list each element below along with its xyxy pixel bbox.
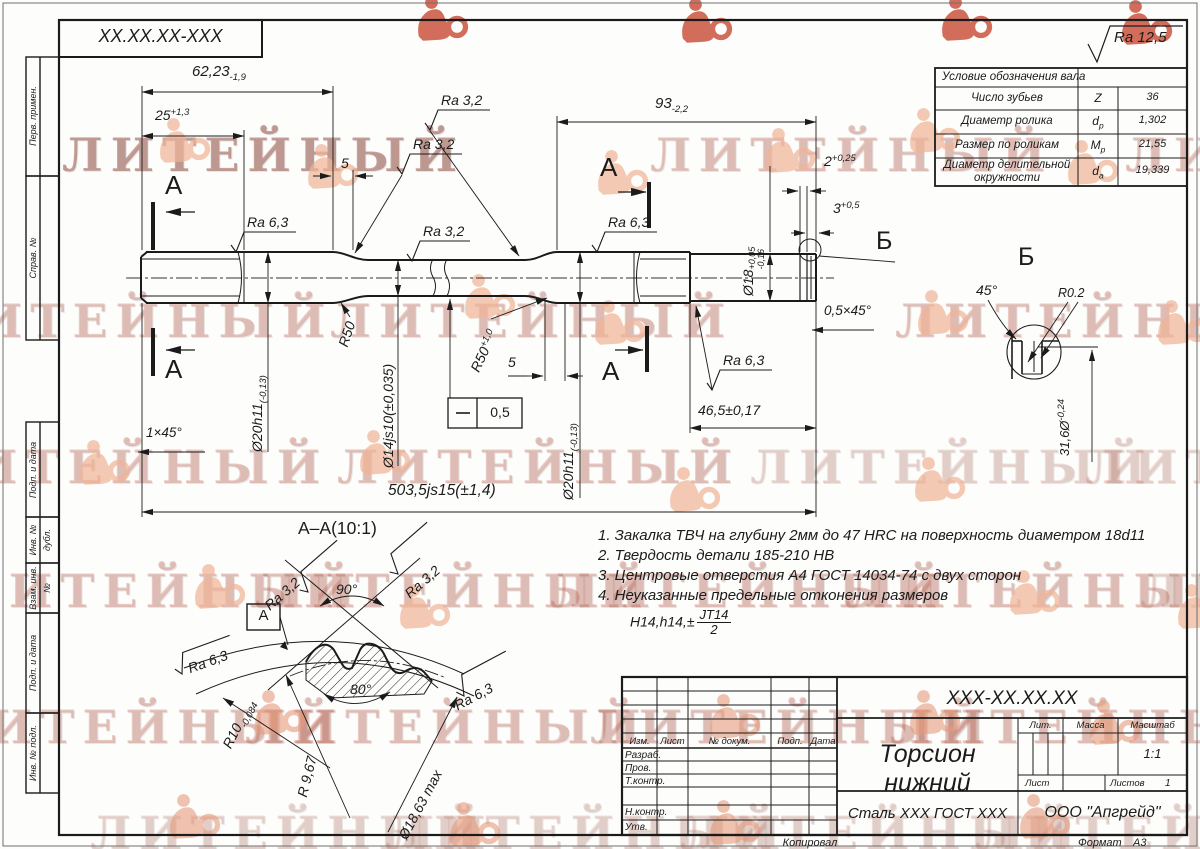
dim-label: 62,23-1,9 [192,64,246,80]
tb-header-list: Лист [657,736,688,747]
footer-format-value: А3 [1133,837,1146,849]
cut-label: А [165,172,182,199]
break-line [445,259,450,296]
dim-label: 5 [508,355,516,370]
material: Сталь XXX ГОСТ XXX [837,805,1018,822]
spline-table-title: Условие обозначения вала [942,71,1085,83]
watermark-text: ЛИТЕЙНЫЙ [62,128,465,182]
margin-stamp: Подп. и дата [26,615,40,711]
tb-header-izm: Изм. [622,736,657,747]
dim-label: 2+0,25 [824,154,856,169]
datum-label: А [247,608,280,624]
drawing-sheet: ЛИТЕЙНЫЙ ЛИТЕЙНЫЙ ЛИТЕЙНЫЙ ЛИТЕЙНЫЙ ЛИТЕ… [0,0,1200,849]
margin-stamp: Инв. № дубл. [26,518,40,562]
note-line: 1. Закалка ТВЧ на глубину 2мм до 47 HRC … [598,528,1145,544]
watermark-text: ЛИТЕЙНЫЙ [245,700,648,754]
dim-label-vertical: Ø20h11(-0,13) [250,327,265,452]
corner-designation: XX.XX.XX-XXX [59,27,262,46]
angle-label: 45° [976,283,997,298]
tb-header-sheet: Лист [1025,778,1049,789]
dim-label: 93-2,2 [655,96,688,112]
angle-label: 80° [350,682,371,697]
roughness-label: Ra 3,2 [441,93,482,108]
tb-row-label: Н.контр. [625,807,667,818]
table-param: Диаметр ролика [936,115,1078,127]
detail-callout-label: Б [876,228,892,254]
margin-stamp: Подп. и дата [26,425,40,515]
cut-label: А [165,356,182,383]
watermark-text: ЛИТЕЙНЫЙ [895,294,1200,348]
dim-label: 5 [341,156,349,171]
dim-label: R 9,67 [295,755,319,799]
dim-label: 1×45° [146,426,182,440]
scale-value: 1:1 [1118,746,1187,761]
roughness-label: Ra 3,2 [423,224,464,239]
table-symbol: dа [1078,165,1118,180]
tb-row-label: Т.контр. [625,776,665,787]
tb-header-mass: Масса [1063,720,1118,731]
table-value: 36 [1118,92,1187,104]
table-value: 1,302 [1118,115,1187,127]
note-line: 4. Неуказанные предельные отконения разм… [598,588,948,604]
watermark-text: ЛИТЕЙНЫЙ [0,294,333,348]
table-param: Размер по роликам [936,139,1078,151]
detail-title: Б [1018,244,1034,270]
note-line: 2. Твердость детали 185-210 НВ [598,548,834,564]
tb-header-lit: Лит. [1018,720,1063,731]
dim-label: 25+1,3 [155,108,189,123]
note-line: 3. Центровые отверстия А4 ГОСТ 14034-74 … [598,568,1021,584]
dim-label: 46,5±0,17 [698,403,760,418]
table-value: 21,55 [1118,139,1187,151]
tb-header-scale: Масштаб [1118,720,1187,731]
table-value: 19,339 [1118,165,1187,177]
tb-header-sign: Подп. [771,736,809,747]
margin-stamp: Инв. № подл. [26,715,40,791]
table-param: Число зубьев [936,92,1078,104]
table-symbol: dр [1078,115,1118,130]
dim-label-vertical: 31,6Ø-0,24 [1058,364,1072,456]
cut-label: А [600,154,617,181]
roughness-label: Ra 6,3 [608,215,649,230]
watermark-text: ЛИТЕЙНЫЙ [1140,564,1200,618]
footer-format-label: Формат [1078,837,1122,849]
dim-label-vertical: Ø18+0,05-0,16 [741,166,766,296]
tb-row-label: Утв. [625,822,648,833]
roughness-label: Ra 6,3 [247,215,288,230]
company: ООО "Апгрейд" [1018,804,1187,822]
watermark-text: ЛИТЕЙНЫЙ [0,440,328,494]
tb-header-sheets: Листов [1110,778,1145,789]
roughness-label: Ra 3,2 [413,137,454,152]
section-title: А–А(10:1) [298,519,377,537]
margin-stamp: Справ. № [26,179,40,337]
break-line [431,259,436,296]
dim-label: 3+0,5 [833,201,860,216]
tb-row-label: Пров. [625,763,651,774]
sheets-value: 1 [1165,778,1171,789]
tolerance-value: 0,5 [479,405,521,420]
dim-label: 503,5js15(±1,4) [388,483,496,499]
watermark-text: ЛИТЕЙНЫЙ [1085,440,1200,494]
radius-label: R0.2 [1058,287,1084,300]
part-name: Торсион нижний [837,740,1018,798]
angle-label: 90° [336,582,357,597]
general-roughness-label: Ra 12,5 [1114,30,1167,46]
margin-stamp: Перв. примен. [26,59,40,173]
table-symbol: Mр [1078,139,1118,154]
tb-header-doc: № докум. [688,736,771,747]
title-designation: XXX-XX.XX.XX [837,688,1187,710]
dim-label-vertical: Ø14js10(±0,035) [381,326,396,468]
table-param: Диаметр делительной окружности [936,159,1078,185]
tb-header-date: Дата [809,736,837,747]
margin-stamp: Взам. инв. № [26,564,40,612]
note-tolerance-formula: H14,h14,±JT142 [630,608,731,638]
footer-copy: Копировал [770,837,850,849]
table-symbol: Z [1078,92,1118,107]
dim-label: 0,5×45° [824,304,871,318]
tb-row-label: Разраб. [625,750,661,761]
roughness-label: Ra 6,3 [186,648,230,676]
detail-callout-circle [799,239,821,261]
dim-label-vertical: Ø20h11(-0,13) [561,375,576,500]
cut-label: А [602,358,619,385]
roughness-label: Ra 6,3 [723,353,764,368]
